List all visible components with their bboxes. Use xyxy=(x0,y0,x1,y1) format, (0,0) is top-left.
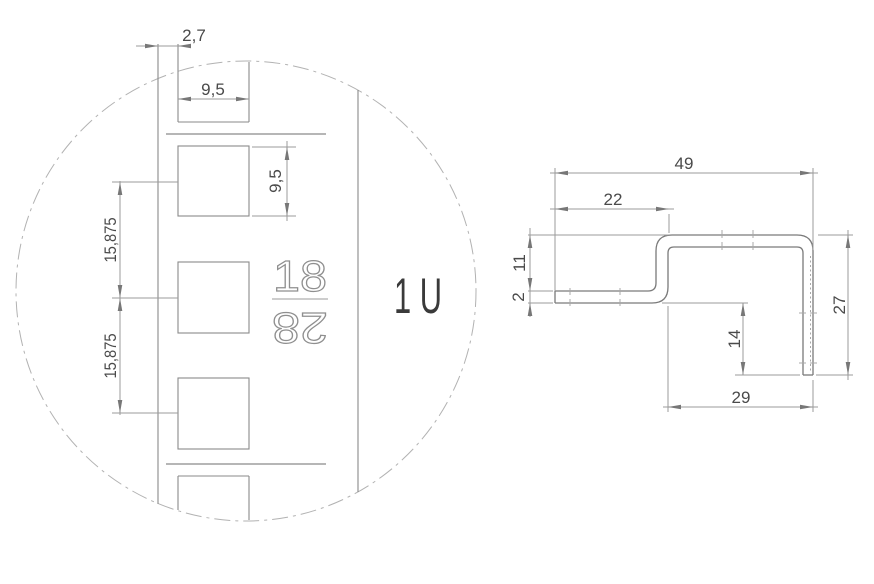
dim-flange-width-value: 22 xyxy=(604,190,623,209)
dim-pitch-upper-value: 15,875 xyxy=(101,218,120,263)
dim-pitch-lower-value: 15,875 xyxy=(101,334,120,379)
dim-hole-width-value: 9,5 xyxy=(201,80,225,99)
unit-height-label: 1 U xyxy=(394,268,442,324)
dim-lower-width-value: 29 xyxy=(732,388,751,407)
dim-hole-height-value: 9,5 xyxy=(266,169,285,193)
dim-edge-offset-value: 2,7 xyxy=(182,26,206,45)
technical-drawing-canvas: 2,7 9,5 9,5 15,875 xyxy=(0,0,874,584)
dim-joggle-height-value: 11 xyxy=(510,254,529,272)
dim-thickness-value: 2 xyxy=(509,292,528,301)
stamp-bottom-number: 28 xyxy=(272,303,328,352)
dim-overall-height-value: 27 xyxy=(830,296,849,315)
dim-leg-drop-value: 14 xyxy=(725,330,744,349)
stamp-top-number: 18 xyxy=(273,252,327,301)
dim-overall-width-value: 49 xyxy=(675,154,694,173)
drawing-svg: 2,7 9,5 9,5 15,875 xyxy=(0,0,874,584)
